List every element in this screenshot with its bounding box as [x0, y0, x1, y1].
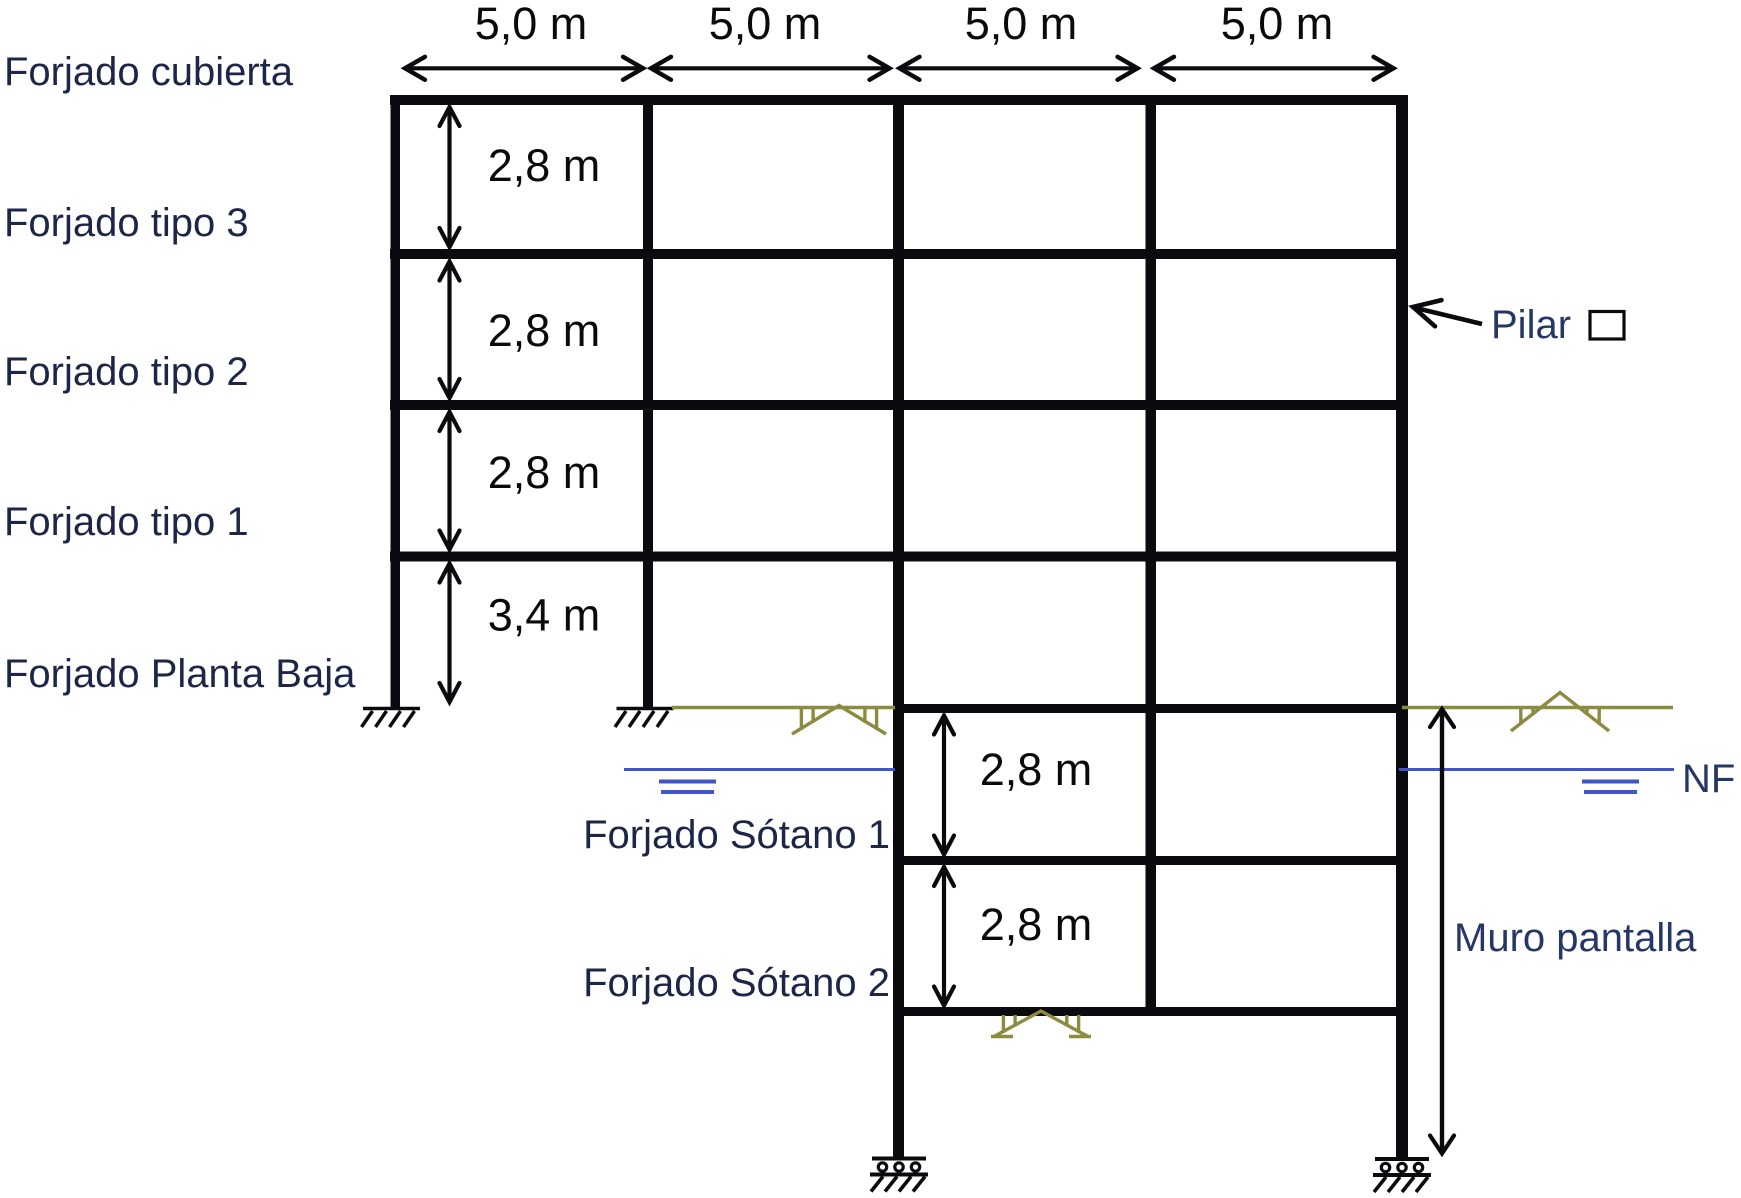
svg-text:2,8 m: 2,8 m — [488, 447, 601, 498]
svg-text:2,8 m: 2,8 m — [980, 899, 1093, 950]
svg-text:Muro pantalla: Muro pantalla — [1454, 916, 1697, 960]
svg-text:Forjado tipo 1: Forjado tipo 1 — [4, 500, 249, 544]
svg-text:NF: NF — [1682, 757, 1735, 801]
svg-text:Forjado Sótano 1: Forjado Sótano 1 — [583, 813, 890, 857]
svg-text:5,0 m: 5,0 m — [709, 0, 822, 49]
svg-text:Forjado cubierta: Forjado cubierta — [4, 50, 294, 94]
svg-text:Forjado tipo 3: Forjado tipo 3 — [4, 201, 249, 245]
svg-text:Forjado Planta Baja: Forjado Planta Baja — [4, 652, 356, 696]
svg-text:Forjado Sótano 2: Forjado Sótano 2 — [583, 961, 890, 1005]
svg-text:2,8 m: 2,8 m — [488, 140, 601, 191]
svg-text:2,8 m: 2,8 m — [488, 305, 601, 356]
svg-text:2,8 m: 2,8 m — [980, 744, 1093, 795]
svg-text:5,0 m: 5,0 m — [965, 0, 1078, 49]
svg-text:Forjado tipo 2: Forjado tipo 2 — [4, 350, 249, 394]
svg-text:Pilar: Pilar — [1491, 303, 1571, 347]
svg-text:3,4 m: 3,4 m — [488, 590, 601, 641]
svg-text:5,0 m: 5,0 m — [475, 0, 588, 49]
svg-text:5,0 m: 5,0 m — [1221, 0, 1334, 49]
